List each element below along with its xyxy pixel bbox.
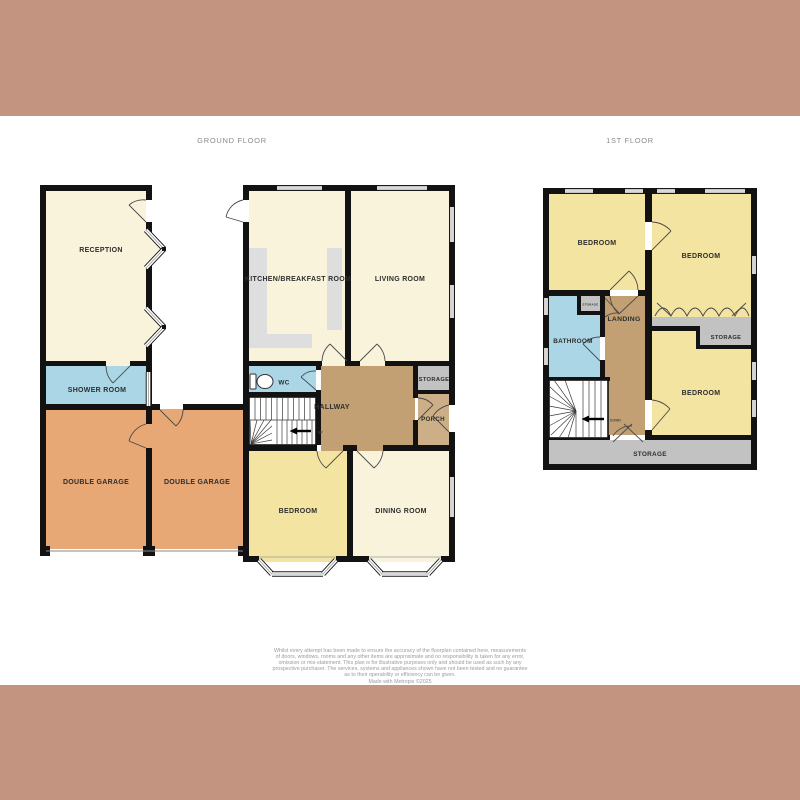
toilet-icon [250,374,273,389]
ground-staircase: UP [249,397,323,445]
room-bedroom-ground-label: BEDROOM [279,508,318,515]
room-shower-label: SHOWER ROOM [68,387,127,394]
disclaimer-text: Whilst every attempt has been made to en… [273,648,528,685]
room-storage-ground-label: STORAGE [419,377,450,383]
window [323,560,336,574]
first-floor-title: 1ST FLOOR [606,136,654,145]
room-garage-left-label: DOUBLE GARAGE [63,479,129,486]
room-reception-label: RECEPTION [79,247,123,254]
room-bedroom3-label: BEDROOM [682,390,721,397]
window [259,560,272,574]
counter-left [249,248,267,348]
room-storage-bottom-label: STORAGE [633,451,667,458]
top-banner [0,0,800,116]
room-wc-label: WC [278,380,289,387]
room-bathroom-label: BATHROOM [553,338,593,345]
room-garage-right-label: DOUBLE GARAGE [164,479,230,486]
room-storage-small-label: STORAGE [583,303,599,307]
room-storage-rear-label: STORAGE [711,335,742,341]
disclaimer-credit: Made with Metropix ©2025 [368,678,431,685]
room-porch-label: PORCH [421,416,445,423]
door [226,200,243,222]
room-landing-label: LANDING [607,316,640,323]
floorplan-image: GROUND FLOOR 1ST FLOOR [0,0,800,800]
room-bedroom1-label: BEDROOM [578,240,617,247]
room-dining-area [353,451,449,562]
room-reception-area [46,191,146,366]
first-floor-plan: DOWN BEDROOM BEDROOM BEDROOM BATHROOM LA… [543,188,757,470]
floorplan-page: GROUND FLOOR 1ST FLOOR [0,0,800,800]
window [369,560,382,574]
room-bedroom2-label: BEDROOM [682,253,721,260]
room-bedroom-ground-area [249,451,347,562]
room-hallway-label: HALLWAY [314,404,350,411]
ground-floor-plan: UP RECEPTION SHOWER ROOM DOUBLE GARAGE D… [40,185,455,574]
room-dining-label: DINING ROOM [375,508,427,515]
bottom-banner [0,685,800,800]
stairs-up-label: UP [318,431,323,435]
disclaimer-line: as to their operability or efficiency ca… [344,672,456,678]
window [428,560,441,574]
room-living-label: LIVING ROOM [375,276,425,283]
room-kitchen-label: KITCHEN/BREAKFAST ROOM [245,276,351,283]
stairs-down-label: DOWN [610,419,621,423]
counter-bottom [249,334,312,348]
wardrobe-strip-area [652,317,751,326]
counter-right [327,248,342,330]
ground-floor-title: GROUND FLOOR [197,136,267,145]
